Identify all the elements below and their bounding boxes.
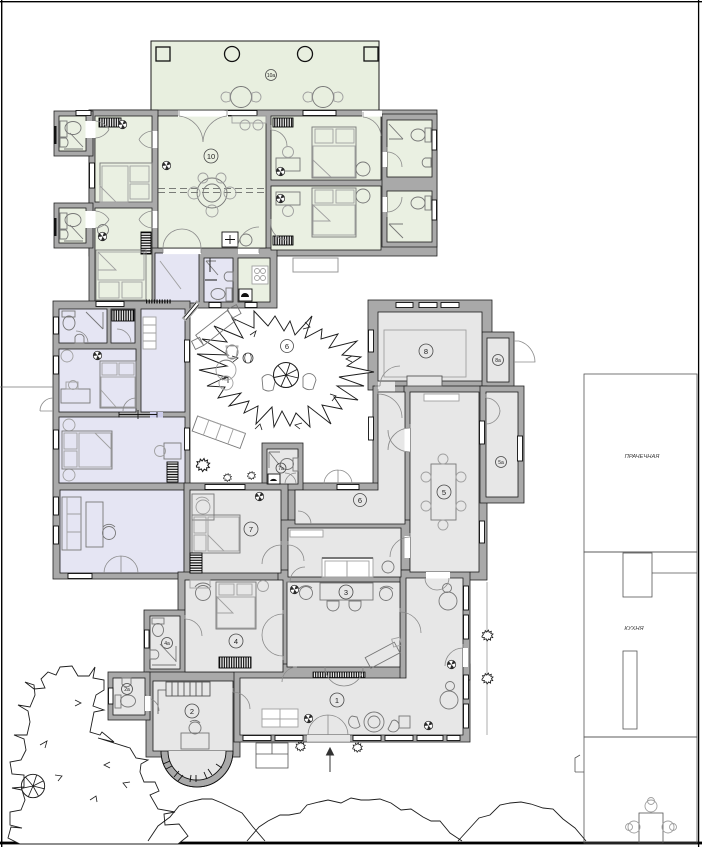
svg-text:5a: 5a [498, 460, 504, 466]
svg-text:4: 4 [234, 637, 238, 646]
svg-text:5: 5 [442, 488, 446, 497]
svg-text:6: 6 [358, 496, 362, 505]
svg-text:КУХНЯ: КУХНЯ [624, 626, 643, 632]
svg-text:8: 8 [424, 347, 428, 356]
svg-text:10: 10 [207, 152, 215, 161]
svg-text:10a: 10a [267, 73, 276, 79]
svg-text:6: 6 [285, 342, 289, 351]
svg-text:4a: 4a [164, 641, 170, 647]
svg-text:2: 2 [190, 707, 194, 716]
svg-text:7: 7 [249, 525, 253, 534]
svg-text:1: 1 [335, 696, 339, 705]
svg-text:ПРАЧЕЧНАЯ: ПРАЧЕЧНАЯ [625, 454, 660, 460]
svg-text:8a: 8a [495, 358, 501, 364]
svg-text:2a: 2a [124, 687, 130, 693]
svg-text:3: 3 [344, 588, 348, 597]
svg-text:7a: 7a [278, 466, 284, 472]
